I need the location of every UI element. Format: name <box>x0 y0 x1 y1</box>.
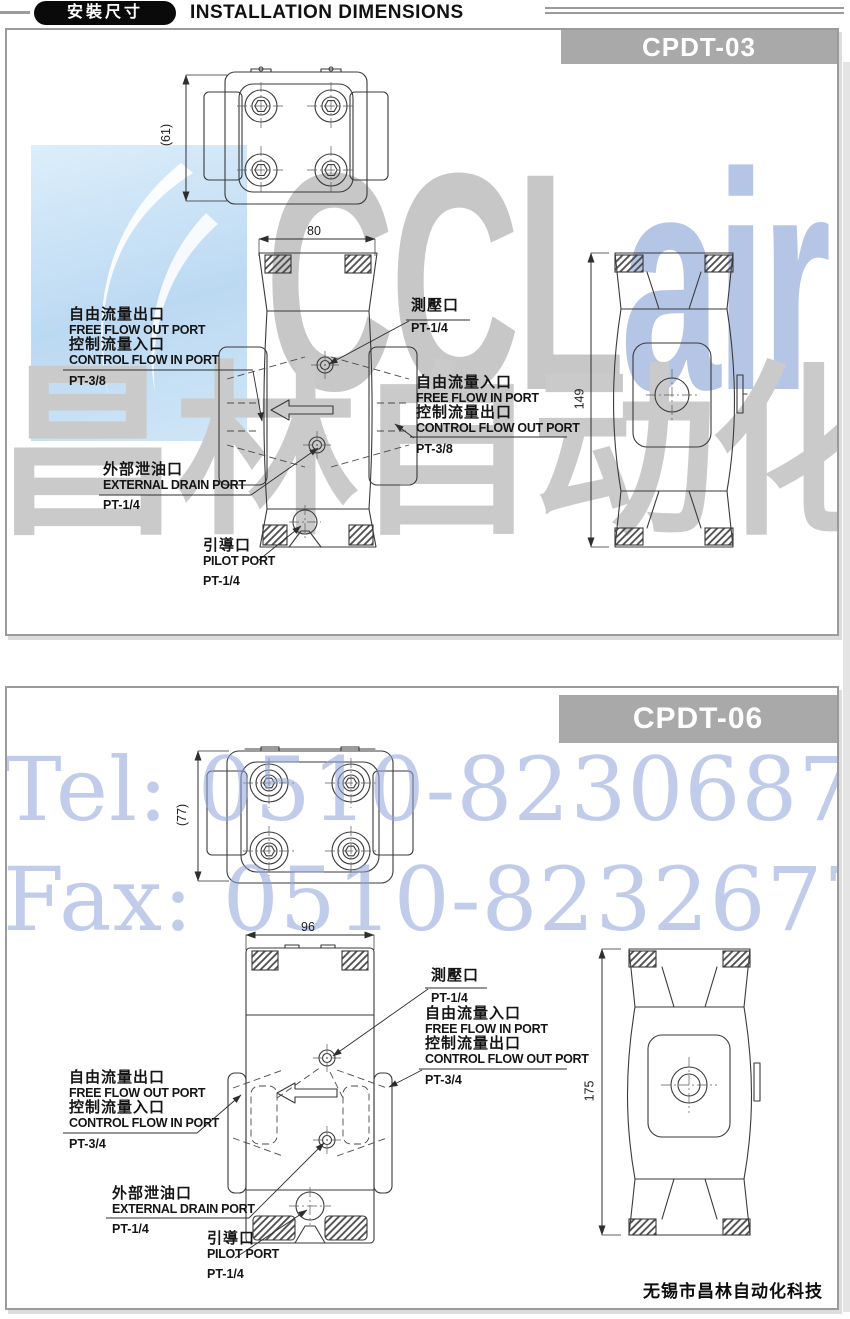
label-en: EXTERNAL DRAIN PORT <box>112 1203 255 1217</box>
label-free-flow-out-port: 自由流量出口 FREE FLOW OUT PORT 控制流量入口 CONTROL… <box>69 1070 219 1151</box>
label-cn: 外部泄油口 <box>103 462 246 479</box>
header-rule-right-2 <box>545 12 844 14</box>
dimension-top-height: (61) <box>159 124 173 146</box>
label-external-drain-port: 外部泄油口 EXTERNAL DRAIN PORT PT-1/4 <box>103 462 246 513</box>
panel-cpdt-06: CPDT-06 Tel: 0510-82306871 Fax: 0510-823… <box>5 686 839 1310</box>
watermark-tel: Tel: 0510-82306871 <box>5 746 839 834</box>
label-port-size: PT-3/4 <box>69 1138 219 1152</box>
label-cn: 自由流量入口 <box>416 375 580 392</box>
header-rule-right <box>545 7 844 9</box>
label-cn: 外部泄油口 <box>112 1186 255 1203</box>
panel-title: CPDT-03 <box>561 30 837 64</box>
label-port-size: PT-1/4 <box>103 499 246 513</box>
label-port-size: PT-1/4 <box>411 322 459 336</box>
panel-cpdt-03: CPDT-03 CCLair 昌林自动化 <box>5 28 839 636</box>
label-cn: 測壓口 <box>431 968 479 985</box>
label-cn: 引導口 <box>203 538 275 555</box>
label-port-size: PT-3/4 <box>425 1074 589 1088</box>
label-port-size: PT-1/4 <box>431 992 479 1006</box>
label-cn: 控制流量入口 <box>69 1100 219 1117</box>
header-badge: 安裝尺寸 <box>34 1 176 25</box>
label-pilot-port: 引導口 PILOT PORT PT-1/4 <box>203 538 275 589</box>
label-free-flow-in-port: 自由流量入口 FREE FLOW IN PORT 控制流量出口 CONTROL … <box>425 1006 589 1087</box>
panel-title: CPDT-06 <box>559 695 837 743</box>
label-en: EXTERNAL DRAIN PORT <box>103 479 246 493</box>
header-rule-left <box>0 11 30 14</box>
label-cn: 引導口 <box>207 1231 279 1248</box>
label-en: CONTROL FLOW IN PORT <box>69 1117 219 1131</box>
label-cn: 控制流量出口 <box>416 405 580 422</box>
label-port-size: PT-3/8 <box>416 443 580 457</box>
dimension-top-height: (77) <box>175 804 189 826</box>
label-en: CONTROL FLOW OUT PORT <box>425 1053 589 1067</box>
label-cn: 自由流量出口 <box>69 307 219 324</box>
label-cn: 自由流量出口 <box>69 1070 219 1087</box>
footer-company: 无锡市昌林自动化科技 <box>643 1277 823 1302</box>
label-port-size: PT-1/4 <box>203 575 275 589</box>
label-port-size: PT-3/8 <box>69 375 219 389</box>
label-en: PILOT PORT <box>203 555 275 569</box>
header-title: INSTALLATION DIMENSIONS <box>190 2 464 24</box>
label-gauge-port: 測壓口 PT-1/4 <box>431 968 479 1005</box>
label-en: PILOT PORT <box>207 1248 279 1262</box>
label-port-size: PT-1/4 <box>207 1268 279 1282</box>
label-cn: 控制流量出口 <box>425 1036 589 1053</box>
label-cn: 控制流量入口 <box>69 337 219 354</box>
label-pilot-port: 引導口 PILOT PORT PT-1/4 <box>207 1231 279 1282</box>
label-gauge-port: 測壓口 PT-1/4 <box>411 298 459 335</box>
dimension-front-width: 96 <box>301 920 315 934</box>
label-free-flow-in-port: 自由流量入口 FREE FLOW IN PORT 控制流量出口 CONTROL … <box>416 375 580 456</box>
label-cn: 自由流量入口 <box>425 1006 589 1023</box>
label-free-flow-out-port: 自由流量出口 FREE FLOW OUT PORT 控制流量入口 CONTROL… <box>69 307 219 388</box>
page-edge <box>843 62 850 1312</box>
dimension-front-width: 80 <box>307 224 321 238</box>
label-cn: 測壓口 <box>411 298 459 315</box>
page: 安裝尺寸 INSTALLATION DIMENSIONS CPDT-03 CCL… <box>0 0 850 1319</box>
label-en: CONTROL FLOW IN PORT <box>69 354 219 368</box>
label-en: CONTROL FLOW OUT PORT <box>416 422 580 436</box>
watermark-fax: Fax: 0510-82326771 <box>5 856 839 944</box>
